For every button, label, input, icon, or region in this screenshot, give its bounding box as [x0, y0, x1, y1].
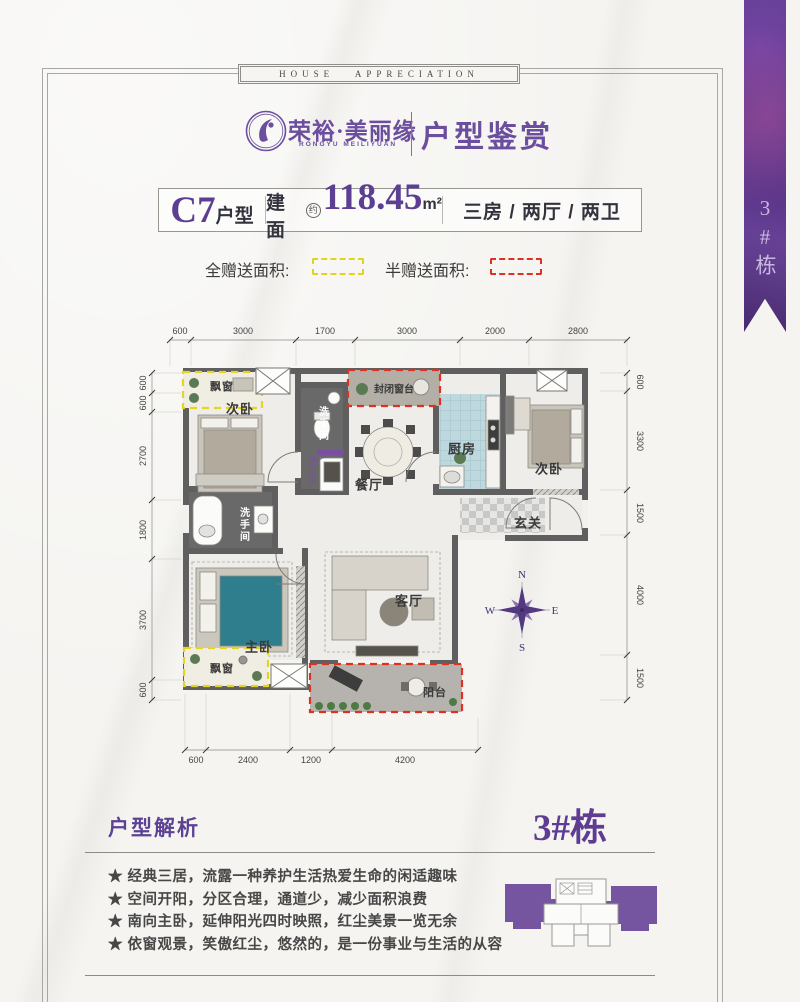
room-label-bedroom-right: 次卧 — [535, 459, 563, 478]
svg-text:2800: 2800 — [568, 326, 588, 336]
banner-box: HOUSE APPRECIATION — [238, 64, 520, 84]
svg-text:4000: 4000 — [635, 585, 645, 605]
svg-text:E: E — [552, 605, 559, 617]
analysis-heading: 户型解析 — [108, 812, 200, 842]
svg-text:600: 600 — [635, 374, 645, 389]
svg-text:3700: 3700 — [138, 610, 148, 630]
room-label-kitchen: 厨房 — [448, 439, 476, 458]
area-unit: m² — [422, 196, 442, 214]
floor-plan: 600 3000 1700 3000 2000 2800 600 600 270… — [135, 300, 670, 770]
svg-text:4200: 4200 — [395, 755, 415, 765]
banner-text: HOUSE APPRECIATION — [240, 66, 518, 82]
analysis-divider-bottom — [85, 975, 655, 976]
room-label-bay-window-top: 飘窗 — [210, 378, 234, 394]
room-label-balcony: 阳台 — [423, 684, 447, 700]
area-approx-badge: 约 — [306, 203, 321, 218]
entry-door-gap — [582, 500, 588, 528]
svg-text:1800: 1800 — [138, 520, 148, 540]
unit-code-suffix: 户型 — [216, 201, 254, 228]
window-hatch — [533, 489, 579, 495]
svg-text:1200: 1200 — [301, 755, 321, 765]
unit-layout: 三房 / 两厅 / 两卫 — [463, 197, 621, 224]
floor-plan-drawing: 600 3000 1700 3000 2000 2800 600 600 270… — [135, 300, 670, 770]
svg-text:2000: 2000 — [485, 326, 505, 336]
svg-text:W: W — [485, 605, 496, 617]
brand-divider — [411, 112, 412, 156]
window-gap — [183, 505, 189, 533]
section-title: 户型鉴赏 — [421, 112, 553, 156]
unit-info-bar: C7 户型 建面 约 118.45 m² 三房 / 两厅 / 两卫 — [158, 188, 642, 232]
gift-area-legend: 全赠送面积: 半赠送面积: — [0, 256, 800, 278]
area-value: 118.45 — [323, 179, 423, 216]
svg-text:2400: 2400 — [238, 755, 258, 765]
legend-half-swatch — [490, 258, 542, 275]
svg-text:S: S — [519, 642, 525, 654]
unit-area-section: 建面 约 118.45 m² — [266, 179, 442, 242]
analysis-bullet: ★ 空间开阳，分区合理，通道少，减少面积浪费 — [108, 889, 518, 912]
room-label-bath-mid: 洗手间 — [236, 507, 251, 543]
room-label-master: 主卧 — [245, 637, 273, 656]
svg-text:600: 600 — [138, 375, 148, 390]
svg-text:3000: 3000 — [233, 326, 253, 336]
svg-text:3300: 3300 — [635, 431, 645, 451]
room-label-foyer: 玄关 — [514, 513, 542, 532]
legend-full-label: 全赠送面积: — [205, 257, 289, 281]
svg-text:600: 600 — [172, 326, 187, 336]
svg-text:N: N — [518, 569, 526, 581]
svg-text:1500: 1500 — [635, 503, 645, 523]
unit-code-section: C7 户型 — [159, 192, 265, 229]
brand-logo-icon — [245, 109, 287, 155]
svg-text:1700: 1700 — [315, 326, 335, 336]
room-label-bedroom-left: 次卧 — [226, 399, 254, 418]
ribbon-label: 3#栋 — [750, 196, 780, 280]
room-label-bay-window-bottom: 飘窗 — [210, 660, 234, 676]
analysis-bullet: ★ 经典三居，流露一种养护生活热爱生命的闲适趣味 — [108, 866, 518, 889]
room-label-bath-top: 洗手间 — [315, 406, 330, 442]
building-number: 3#栋 — [455, 797, 607, 851]
analysis-divider-top — [85, 852, 655, 853]
room-label-living: 客厅 — [395, 591, 423, 610]
svg-text:1500: 1500 — [635, 668, 645, 688]
room-label-dining: 餐厅 — [355, 475, 383, 494]
area-label: 建面 — [266, 188, 304, 242]
compass-icon — [494, 582, 550, 638]
key-plate — [493, 866, 673, 972]
svg-text:600: 600 — [138, 395, 148, 410]
unit-layout-section: 三房 / 两厅 / 两卫 — [443, 197, 641, 224]
unit-code: C7 — [170, 192, 215, 229]
brand-name-en: RONGYU MEILIYUAN — [299, 141, 397, 148]
plan-note: 用户自理 — [306, 456, 316, 484]
analysis-bullet: ★ 南向主卧，延伸阳光四时映照，红尘美景一览无余 — [108, 911, 518, 934]
analysis-bullet: ★ 依窗观景，笑傲红尘，悠然的，是一份事业与生活的从容 — [108, 934, 518, 957]
svg-text:600: 600 — [188, 755, 203, 765]
svg-text:600: 600 — [138, 682, 148, 697]
building-ribbon: 3#栋 — [744, 0, 786, 332]
analysis-bullets: ★ 经典三居，流露一种养护生活热爱生命的闲适趣味 ★ 空间开阳，分区合理，通道少… — [108, 866, 518, 956]
svg-text:3000: 3000 — [397, 326, 417, 336]
media-wall-hatch — [296, 566, 305, 658]
legend-half-label: 半赠送面积: — [385, 257, 469, 281]
svg-text:2700: 2700 — [138, 446, 148, 466]
room-label-closed-sill: 封闭窗台 — [374, 381, 414, 396]
poster-page: HOUSE APPRECIATION 荣裕·美丽缘 RONGYU MEILIYU… — [0, 0, 800, 1002]
legend-full-swatch — [312, 258, 364, 275]
key-plate-core — [544, 879, 618, 946]
